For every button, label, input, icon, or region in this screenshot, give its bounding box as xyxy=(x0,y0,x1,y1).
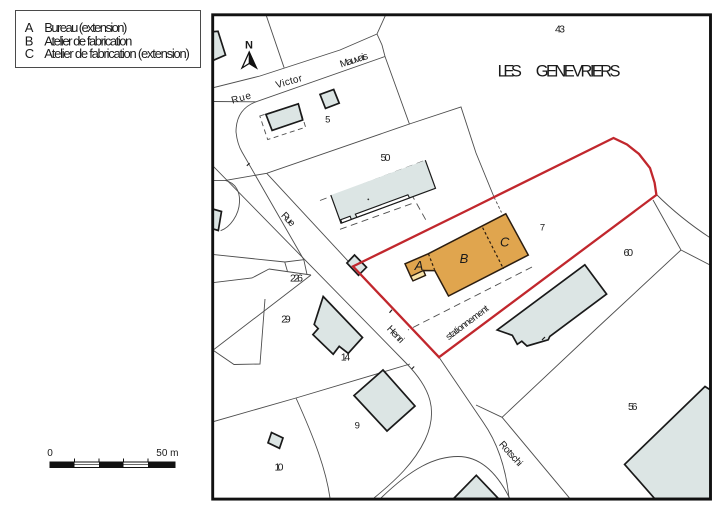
svg-text:226: 226 xyxy=(290,273,303,285)
svg-text:Rue: Rue xyxy=(230,90,253,106)
svg-text:29: 29 xyxy=(281,314,291,326)
svg-text:5: 5 xyxy=(325,115,330,126)
svg-text:C: C xyxy=(25,46,34,61)
svg-text:14: 14 xyxy=(341,351,351,363)
svg-text:10: 10 xyxy=(275,462,284,474)
svg-text:Rue: Rue xyxy=(278,210,297,229)
svg-text:B: B xyxy=(460,251,469,266)
svg-text:60: 60 xyxy=(624,247,634,259)
svg-text:Atelier de fabrication (extens: Atelier de fabrication (extension) xyxy=(44,46,190,61)
svg-text:0: 0 xyxy=(47,448,53,459)
svg-text:N: N xyxy=(245,40,253,52)
svg-text:56: 56 xyxy=(628,401,638,413)
svg-text:LES: LES xyxy=(498,63,522,81)
svg-text:Henri: Henri xyxy=(384,324,406,346)
svg-text:50: 50 xyxy=(381,152,391,164)
svg-text:GENEVRIERS: GENEVRIERS xyxy=(536,63,621,81)
svg-text:7: 7 xyxy=(540,223,545,234)
svg-text:Victor: Victor xyxy=(275,73,305,91)
svg-text:A: A xyxy=(414,258,424,273)
svg-text:C: C xyxy=(500,234,510,249)
svg-text:50 m: 50 m xyxy=(156,448,178,459)
svg-text:9: 9 xyxy=(355,421,360,432)
svg-text:43: 43 xyxy=(555,24,565,36)
svg-text:Rotschi: Rotschi xyxy=(496,439,524,469)
